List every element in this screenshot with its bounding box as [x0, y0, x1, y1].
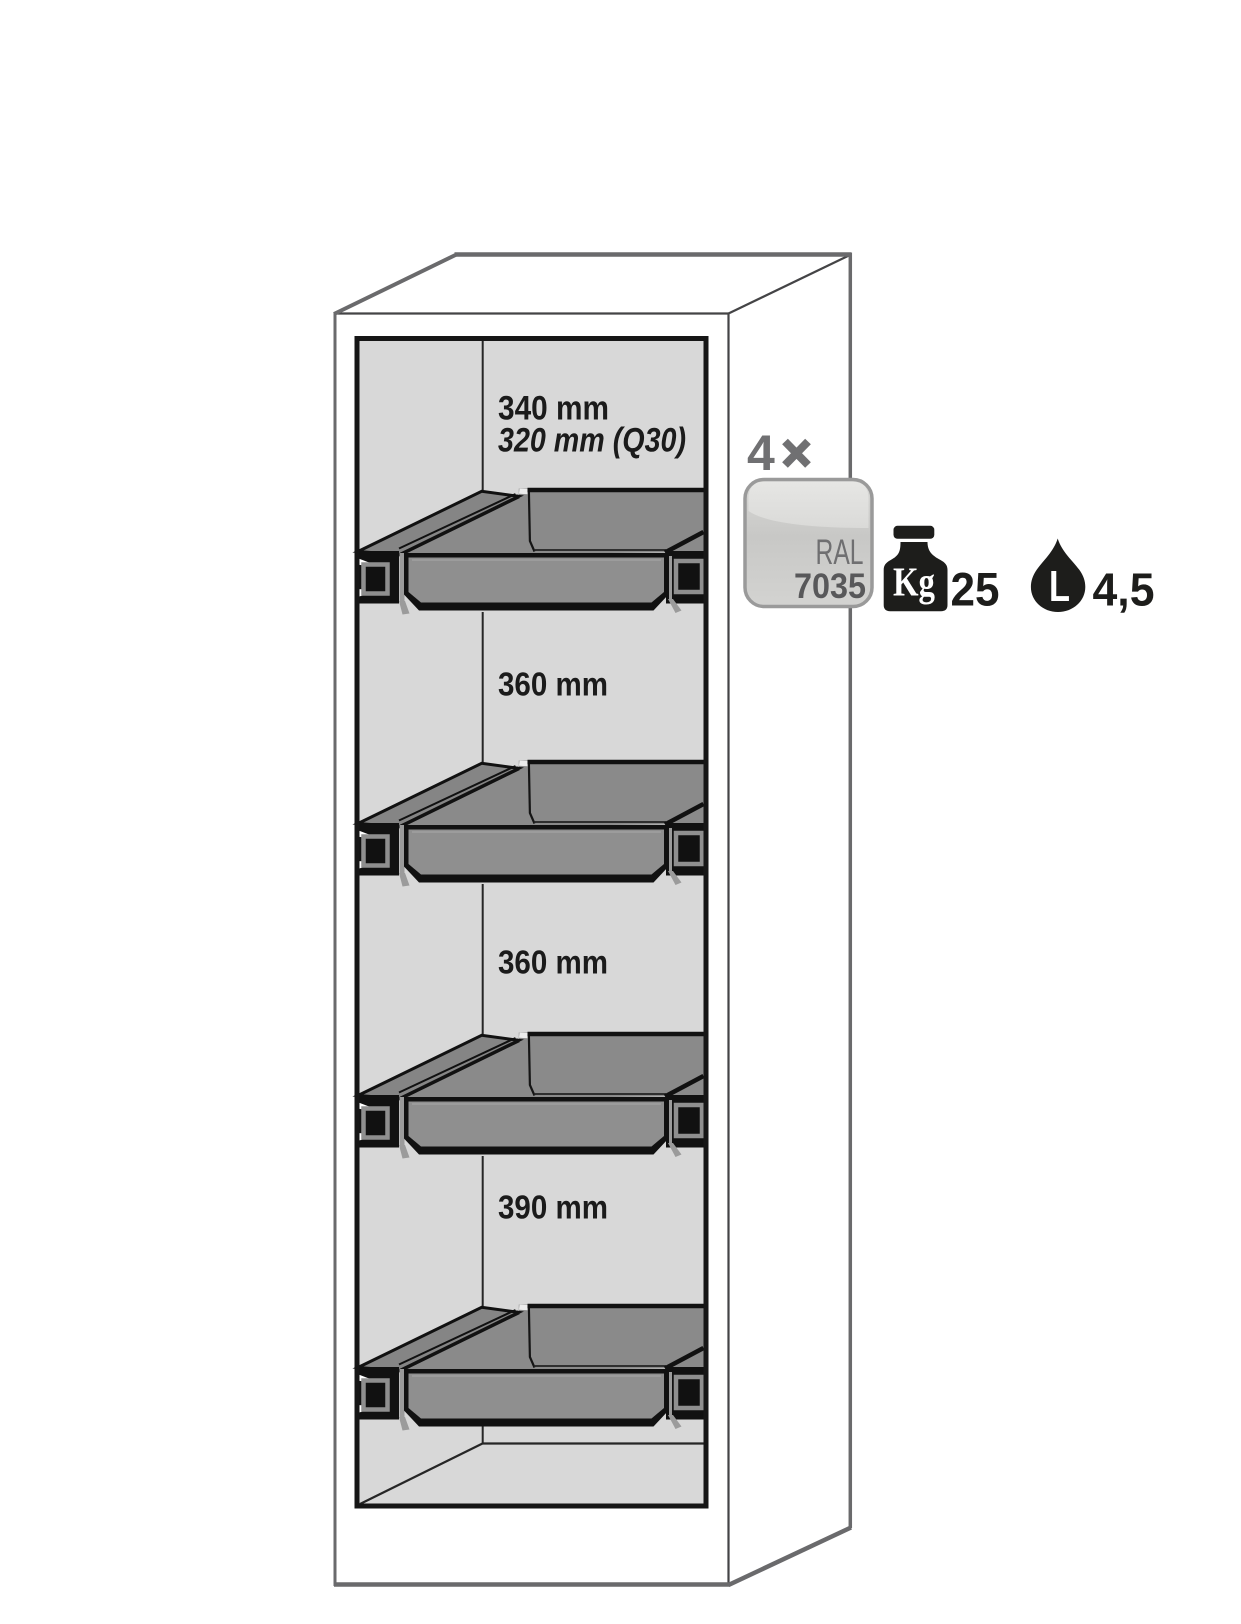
svg-text:4,5: 4,5 — [1093, 564, 1155, 616]
svg-text:Kg: Kg — [893, 559, 935, 605]
svg-text:320 mm (Q30): 320 mm (Q30) — [498, 422, 686, 460]
svg-text:L: L — [1049, 562, 1070, 611]
svg-text:7035: 7035 — [794, 567, 866, 606]
svg-text:360 mm: 360 mm — [498, 944, 608, 981]
svg-text:25: 25 — [951, 563, 1000, 616]
svg-text:4: 4 — [747, 425, 775, 481]
svg-text:390 mm: 390 mm — [498, 1189, 608, 1226]
svg-text:360 mm: 360 mm — [498, 666, 608, 703]
